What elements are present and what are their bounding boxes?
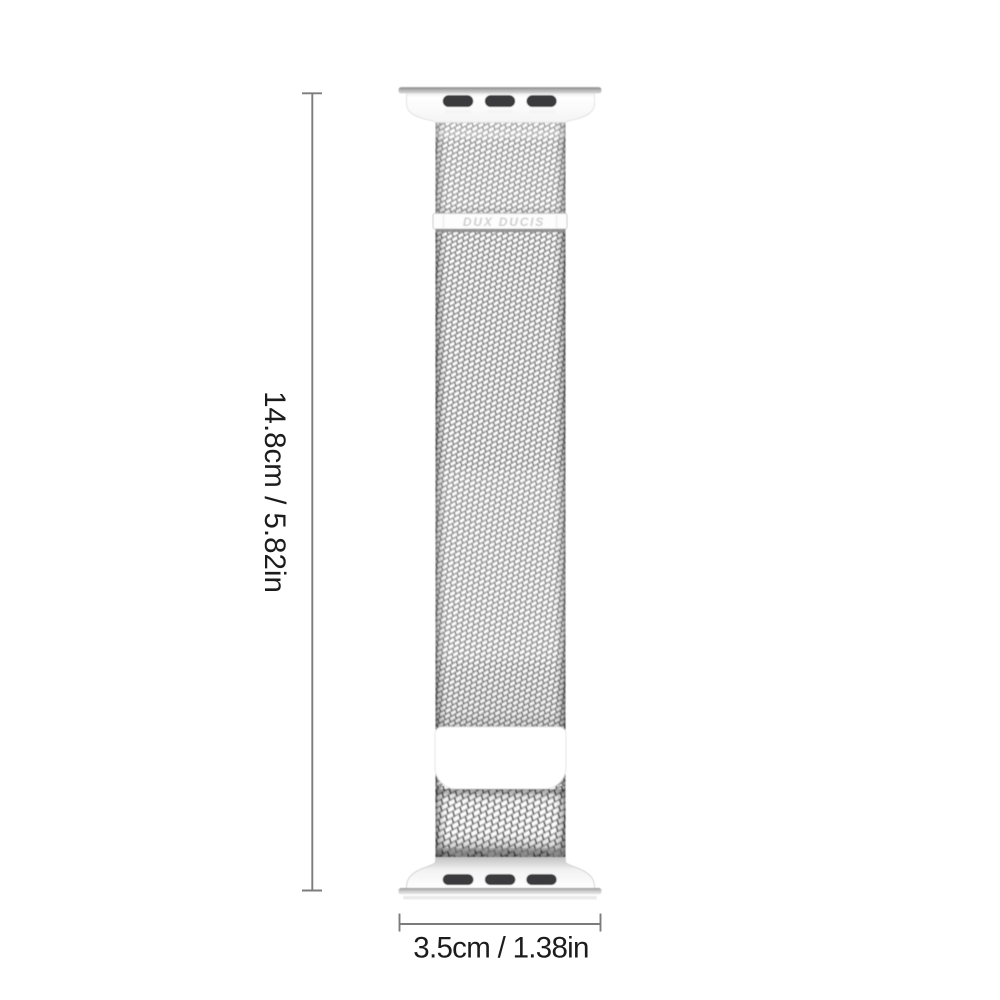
svg-text:3.5cm / 1.38in: 3.5cm / 1.38in (413, 932, 589, 965)
svg-text:DUX DUCIS: DUX DUCIS (463, 215, 545, 229)
svg-text:14.8cm / 5.82in: 14.8cm / 5.82in (258, 391, 291, 593)
